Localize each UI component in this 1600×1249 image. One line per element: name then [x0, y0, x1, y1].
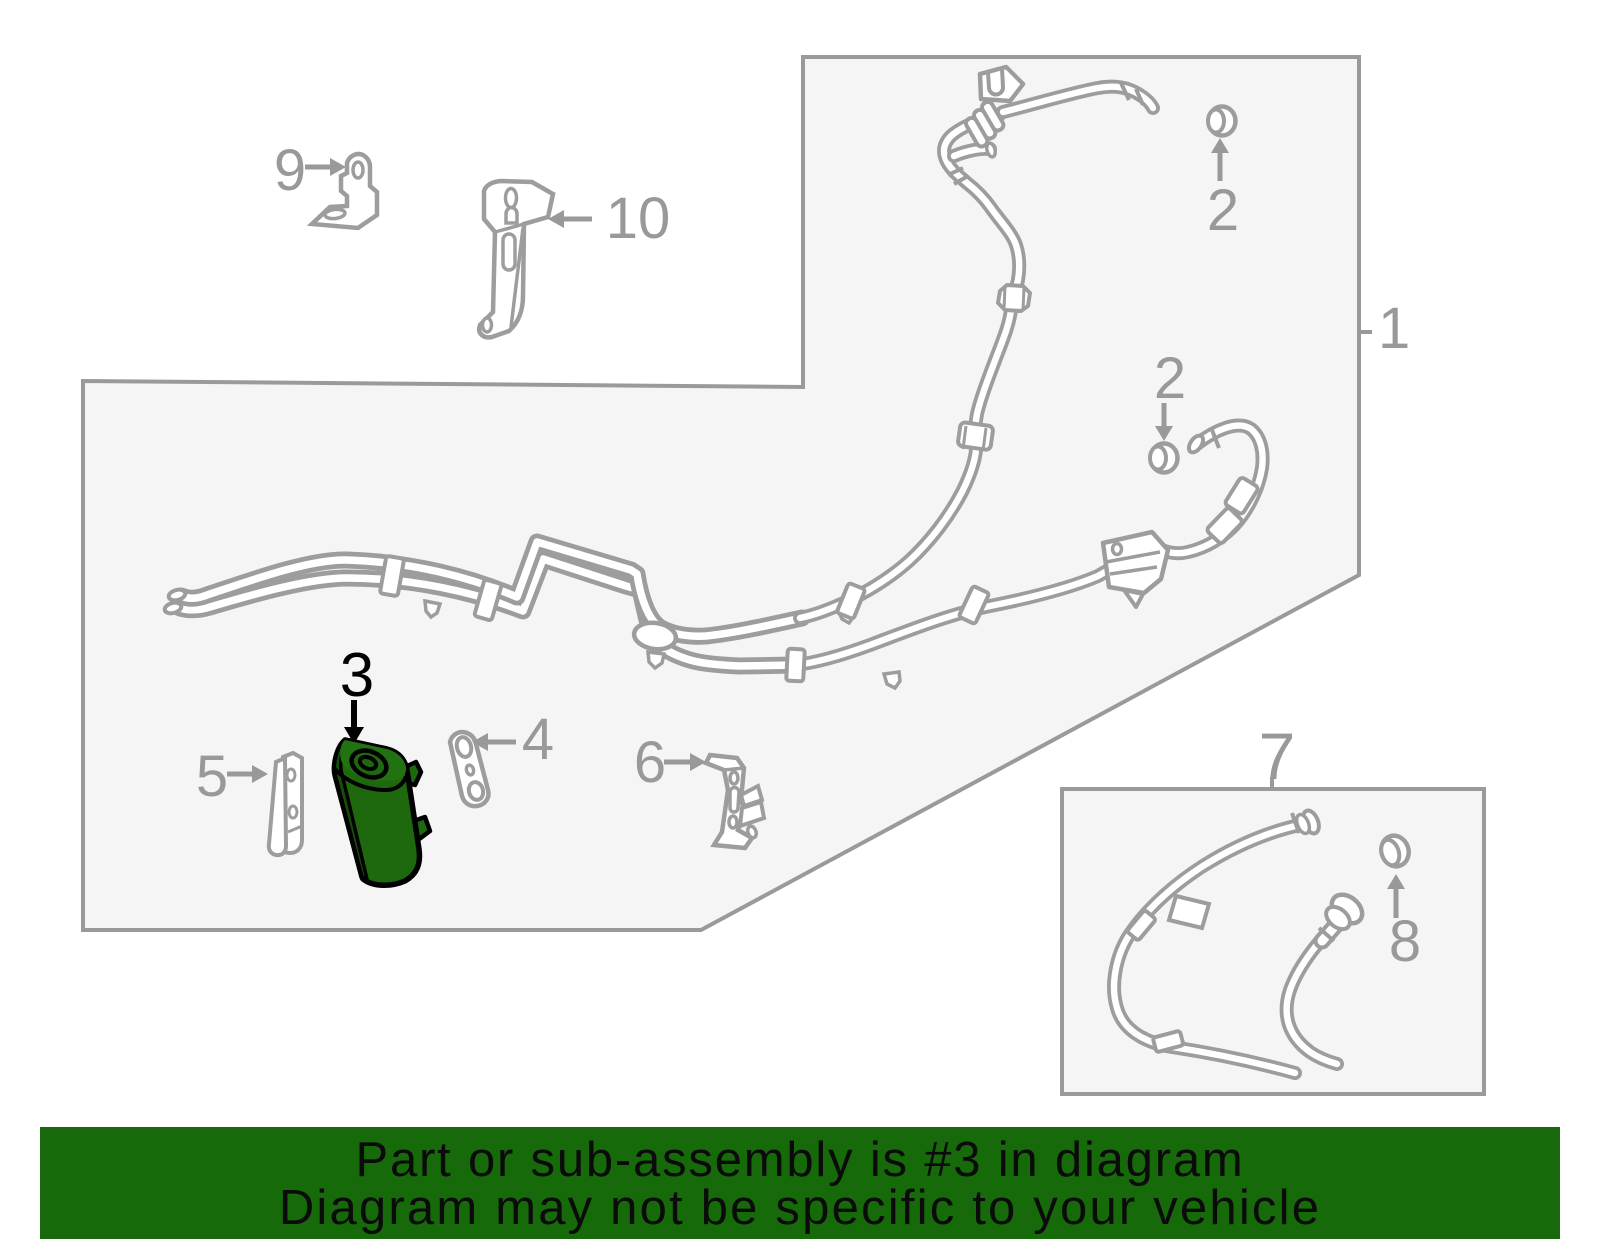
- svg-text:2: 2: [1207, 178, 1239, 243]
- svg-text:10: 10: [606, 186, 671, 251]
- svg-text:2: 2: [1154, 346, 1186, 411]
- svg-text:6: 6: [634, 730, 666, 795]
- svg-text:3: 3: [340, 641, 374, 710]
- svg-text:4: 4: [522, 707, 554, 772]
- svg-text:1: 1: [1378, 296, 1410, 361]
- svg-text:7: 7: [1259, 719, 1296, 793]
- svg-text:5: 5: [196, 744, 228, 809]
- svg-text:Diagram may not be specific to: Diagram may not be specific to your vehi…: [279, 1181, 1321, 1235]
- svg-text:Part or sub-assembly is #3 in: Part or sub-assembly is #3 in diagram: [355, 1133, 1244, 1187]
- svg-text:9: 9: [274, 138, 306, 203]
- svg-text:8: 8: [1389, 909, 1421, 974]
